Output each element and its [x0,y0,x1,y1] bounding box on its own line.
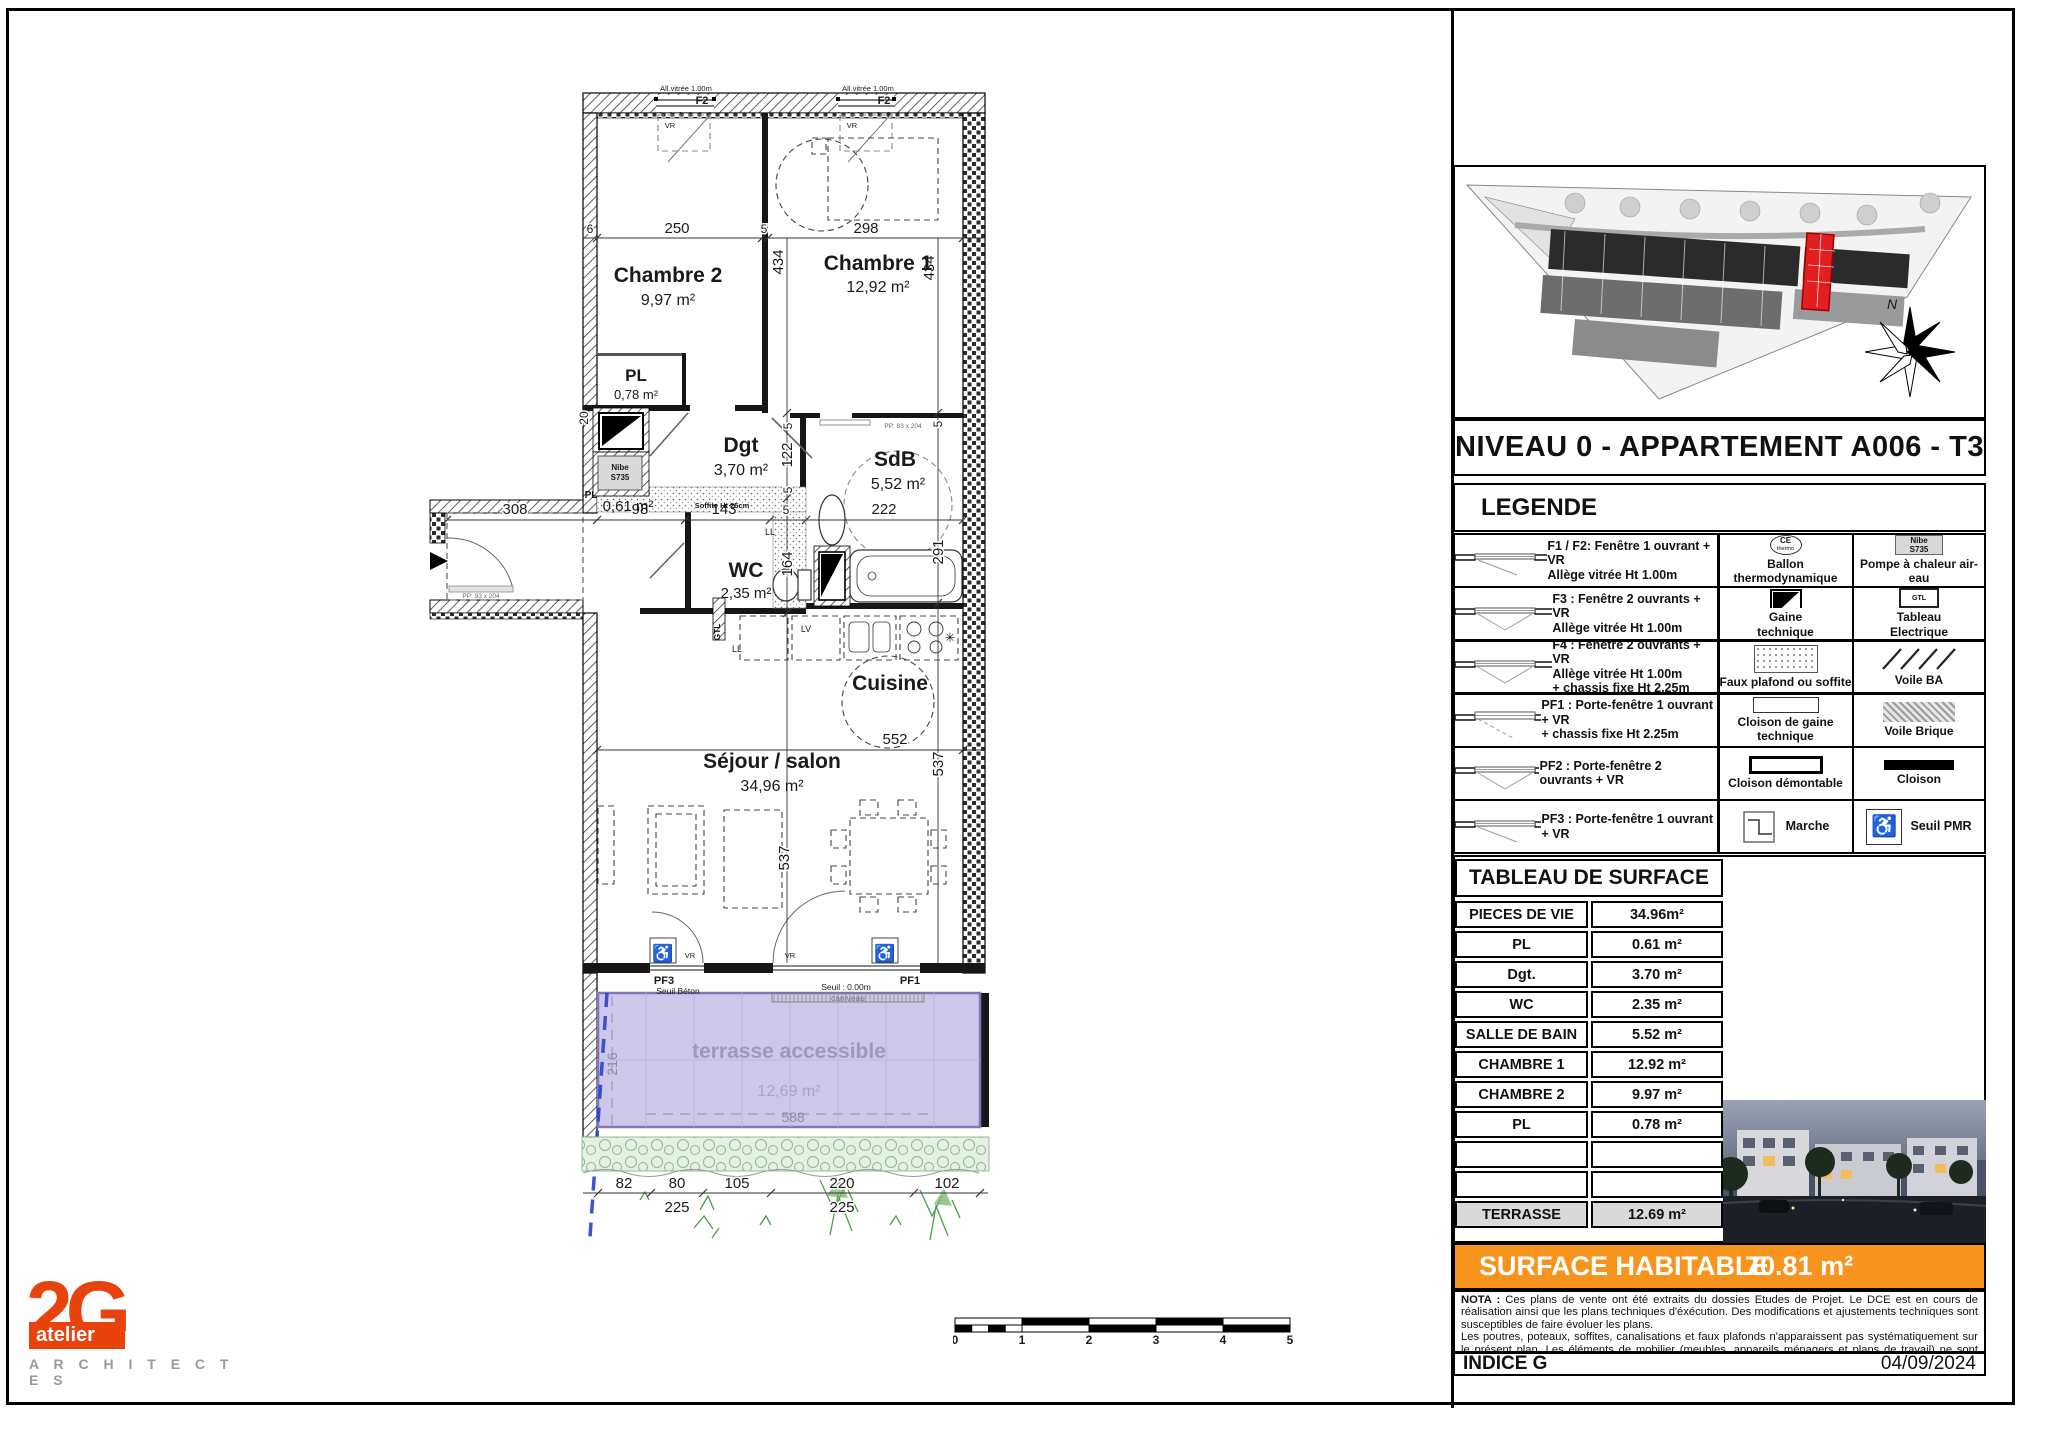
pf3-symbol-icon [1455,807,1541,847]
architect-logo: 2G atelier A R C H I T E C T E S [26,1276,236,1372]
legend-cell: Voile BA [1854,642,1984,693]
table-row [1455,1171,1723,1198]
table-row: SALLE DE BAIN5.52 m² [1455,1021,1723,1048]
legend-cell: Gaine technique [1720,588,1852,639]
dim: 552 [882,731,907,748]
dim: 250 [664,220,689,237]
nibe-label: Nibe [611,463,629,472]
heat-pump-icon: Nibe S735 [1895,535,1943,555]
legend-cell: F3 : Fenêtre 2 ouvrants + VR Allège vitr… [1455,588,1717,639]
dim: 537 [930,751,947,776]
cloison-gaine-icon [1753,697,1819,713]
room-dgt: Dgt [724,434,759,457]
surface-table: PIECES DE VIE34.96m² PL0.61 m² Dgt.3.70 … [1455,901,1723,1228]
dim: 220 [829,1175,854,1192]
pf2-symbol-icon [1455,753,1539,793]
vr-label: VR [665,121,676,130]
legend-cell: PF1 : Porte-fenêtre 1 ouvrant + VR + cha… [1455,695,1717,746]
wheelchair-icon: ♿ [874,943,895,963]
legend-label: Tableau Electrique [1890,610,1948,639]
dim: 434 [770,249,787,274]
logo-architectes-text: A R C H I T E C T E S [29,1356,236,1388]
legend-label: Gaine technique [1757,610,1814,639]
seuil-000-label: Seuil : 0.00m [821,982,871,992]
legend-label: Voile BA [1895,673,1943,688]
legend-label: Seuil PMR [1910,819,1971,834]
dim: 5 [783,503,790,517]
dim: 298 [853,220,878,237]
dim: 5 [931,420,945,427]
voile-brique-icon [1883,702,1955,722]
site-plan: N [1455,167,1983,416]
room-pl: PL [625,366,647,385]
area-sejour: 34,96 m² [740,778,804,795]
dim: 537 [776,845,793,870]
scale-tick: 0 [953,1333,959,1346]
legend-cell: GTL Tableau Electrique [1854,588,1984,639]
area-dgt: 3,70 m² [714,462,769,479]
legend-cell: F1 / F2: Fenêtre 1 ouvrant + VR Allège v… [1455,535,1717,586]
room-pl-small: PL [585,490,598,501]
vr-label: VR [847,121,858,130]
terrace-name: terrasse accessible [692,1040,886,1063]
surface-habitable-label: SURFACE HABITABLE [1455,1251,1770,1282]
window-f4-symbol-icon [1455,647,1552,687]
nibe-model: S735 [611,473,630,482]
legend-cell: Cloison [1854,748,1984,799]
area-chambre1: 12,92 m² [846,279,910,296]
vr-label: VR [785,951,796,960]
scale-bar: 0 1 2 3 4 5 [953,1316,1293,1351]
table-row: PL0.78 m² [1455,1111,1723,1138]
legend-label: PF3 : Porte-fenêtre 1 ouvrant + VR [1541,812,1717,841]
legend-cell: Faux plafond ou soffite [1720,642,1852,693]
caniveau-label: caniveau [831,993,865,1003]
pf1-symbol-icon [1455,700,1541,740]
wheelchair-icon: ♿ [1866,809,1902,845]
legend-label: Cloison de gaine technique [1737,715,1833,744]
faux-plafond-icon [1754,645,1818,673]
legend-cell: CE thermo Ballon thermodynamique [1720,535,1852,586]
lv-label: LV [801,624,811,634]
ll-label: LL [732,644,742,654]
plan-sheet: 6 250 5 298 434 434 20 308 98 143 5 222 … [0,0,2048,1440]
voile-ba-icon [1881,647,1957,671]
legend-cell: Marche [1720,801,1852,852]
gaine-technique-icon [1768,588,1804,608]
gtl-label: GTL [712,624,722,641]
legend-label: Ballon thermodynamique [1733,557,1837,586]
area-pl-small: 0,61 m² [603,498,654,515]
table-row: CHAMBRE 112.92 m² [1455,1051,1723,1078]
dim: 5 [781,422,795,429]
dim: 308 [502,501,527,518]
legend-label: PF2 : Porte-fenêtre 2 ouvrants + VR [1539,759,1717,788]
table-row-terrasse: TERRASSE12.69 m² [1455,1201,1723,1228]
dim: 20 [577,411,591,425]
legend-grid: F1 / F2: Fenêtre 1 ouvrant + VR Allège v… [1453,533,1986,854]
door-pp-entry: PP: 93 x 204 [462,593,500,600]
compass-n-label: N [1887,296,1898,312]
room-chambre2: Chambre 2 [614,264,723,287]
area-wc: 2,35 m² [721,585,772,602]
table-row [1455,1141,1723,1168]
dim: 5 [761,222,768,236]
sheet-title: NIVEAU 0 - APPARTEMENT A006 - T3 [1453,419,1986,476]
window-allege-label: All.vitrée 1.00m [660,84,712,93]
legend-cell: PF2 : Porte-fenêtre 2 ouvrants + VR [1455,748,1717,799]
indice-box: INDICE G 04/09/2024 [1453,1352,1986,1376]
room-sejour: Séjour / salon [703,750,841,773]
nota-box: NOTA : Ces plans de vente ont été extrai… [1453,1290,1986,1353]
table-row: CHAMBRE 29.97 m² [1455,1081,1723,1108]
scale-tick: 2 [1086,1333,1093,1346]
floor-plan: 6 250 5 298 434 434 20 308 98 143 5 222 … [0,0,1450,1440]
dim: 291 [930,539,947,564]
legend-label: Marche [1786,819,1830,834]
legend-cell: Nibe S735 Pompe à chaleur air-eau [1854,535,1984,586]
table-row: Dgt.3.70 m² [1455,961,1723,988]
fridge-star-icon: ✳ [945,630,956,645]
dim: 82 [616,1175,633,1192]
room-sdb: SdB [874,448,916,471]
dim: 122 [779,442,796,467]
dim: 105 [724,1175,749,1192]
entry-arrow [430,552,448,570]
table-row: WC2.35 m² [1455,991,1723,1018]
legend-label: F4 : Fenêtre 2 ouvrants + VR Allège vitr… [1552,642,1717,693]
legend-cell: Cloison démontable [1720,748,1852,799]
legend-label: F3 : Fenêtre 2 ouvrants + VR Allège vitr… [1552,592,1717,636]
vr-label: VR [685,951,696,960]
nota-label: NOTA : [1461,1294,1500,1306]
indice-label: INDICE G [1463,1353,1547,1375]
legend-label: Cloison [1897,772,1941,787]
room-cuisine: Cuisine [852,672,928,695]
site-plan-box: N [1453,165,1986,419]
surface-table-heading: TABLEAU DE SURFACE [1455,859,1723,897]
scale-tick: 3 [1153,1333,1160,1346]
surface-table-wrap: TABLEAU DE SURFACE PIECES DE VIE34.96m² … [1453,855,1986,1243]
room-wc: WC [729,559,764,582]
dim: 6 [587,222,594,236]
window-f2-label: F2 [696,95,709,107]
cloison-demontable-icon [1749,756,1823,774]
indice-date: 04/09/2024 [1881,1353,1976,1375]
legend-label: F1 / F2: Fenêtre 1 ouvrant + VR Allège v… [1547,539,1717,583]
terrace-area: 12,69 m² [757,1083,821,1100]
legend-label: Voile Brique [1884,724,1953,739]
cloison-icon [1884,760,1954,770]
table-row: PL0.61 m² [1455,931,1723,958]
legend-cell: Voile Brique [1854,695,1984,746]
surface-habitable-bar: SURFACE HABITABLE 70.81 m² [1453,1243,1986,1290]
ll-label2: LL [765,527,775,537]
legend-heading-text: LEGENDE [1481,494,1597,522]
legend-cell: F4 : Fenêtre 2 ouvrants + VR Allège vitr… [1455,642,1717,693]
sheet-title-text: NIVEAU 0 - APPARTEMENT A006 - T3 [1455,431,1984,464]
window-f1-symbol-icon [1455,540,1547,580]
scale-tick: 5 [1287,1333,1293,1346]
table-row: PIECES DE VIE34.96m² [1455,901,1723,928]
logo-atelier-text: atelier [29,1324,95,1347]
dim: 225 [664,1199,689,1216]
dim: 222 [871,501,896,518]
landscape [582,1137,989,1240]
ballon-thermo-icon: CE thermo [1770,535,1802,555]
surface-habitable-value: 70.81 m² [1745,1251,1853,1282]
legend-heading: LEGENDE [1453,483,1986,532]
legend-label: Pompe à chaleur air-eau [1854,557,1984,586]
building-photo [1723,1100,1986,1243]
window-f2-label: F2 [878,95,891,107]
legend-cell: ♿ Seuil PMR [1854,801,1984,852]
scale-tick: 1 [1019,1333,1026,1346]
nota-paragraph-1: Ces plans de vente ont été extraits du d… [1461,1294,1978,1331]
dim: 164 [779,551,796,576]
dim: 80 [669,1175,686,1192]
area-pl: 0,78 m² [614,387,659,402]
scale-tick: 4 [1220,1333,1227,1346]
area-chambre2: 9,97 m² [641,292,696,309]
legend-label: Cloison démontable [1728,776,1843,791]
pf1-label: PF1 [900,975,920,987]
dim: 588 [781,1109,805,1125]
legend-cell: PF3 : Porte-fenêtre 1 ouvrant + VR [1455,801,1717,852]
tableau-electrique-icon: GTL [1899,588,1939,608]
wheelchair-icon: ♿ [652,943,673,963]
area-sdb: 5,52 m² [871,476,926,493]
dim: 225 [829,1199,854,1216]
dim: 216 [604,1052,620,1076]
legend-label: Faux plafond ou soffite [1720,675,1852,690]
legend-cell: Cloison de gaine technique [1720,695,1852,746]
seuil-beton-label: Seuil Béton [656,986,700,996]
marche-icon [1742,810,1776,844]
soffite-label: Soffite Ht 25cm [695,501,750,510]
room-chambre1: Chambre 1 [824,252,933,275]
dim: 102 [934,1175,959,1192]
logo-atelier-chip: atelier [29,1322,125,1349]
dim: 5 [781,486,795,493]
window-f3-symbol-icon [1455,594,1552,634]
window-allege-label: All.vitrée 1.00m [842,84,894,93]
door-pp-sdb: PP: 83 x 204 [884,423,922,430]
legend-label: PF1 : Porte-fenêtre 1 ouvrant + VR + cha… [1541,698,1717,742]
